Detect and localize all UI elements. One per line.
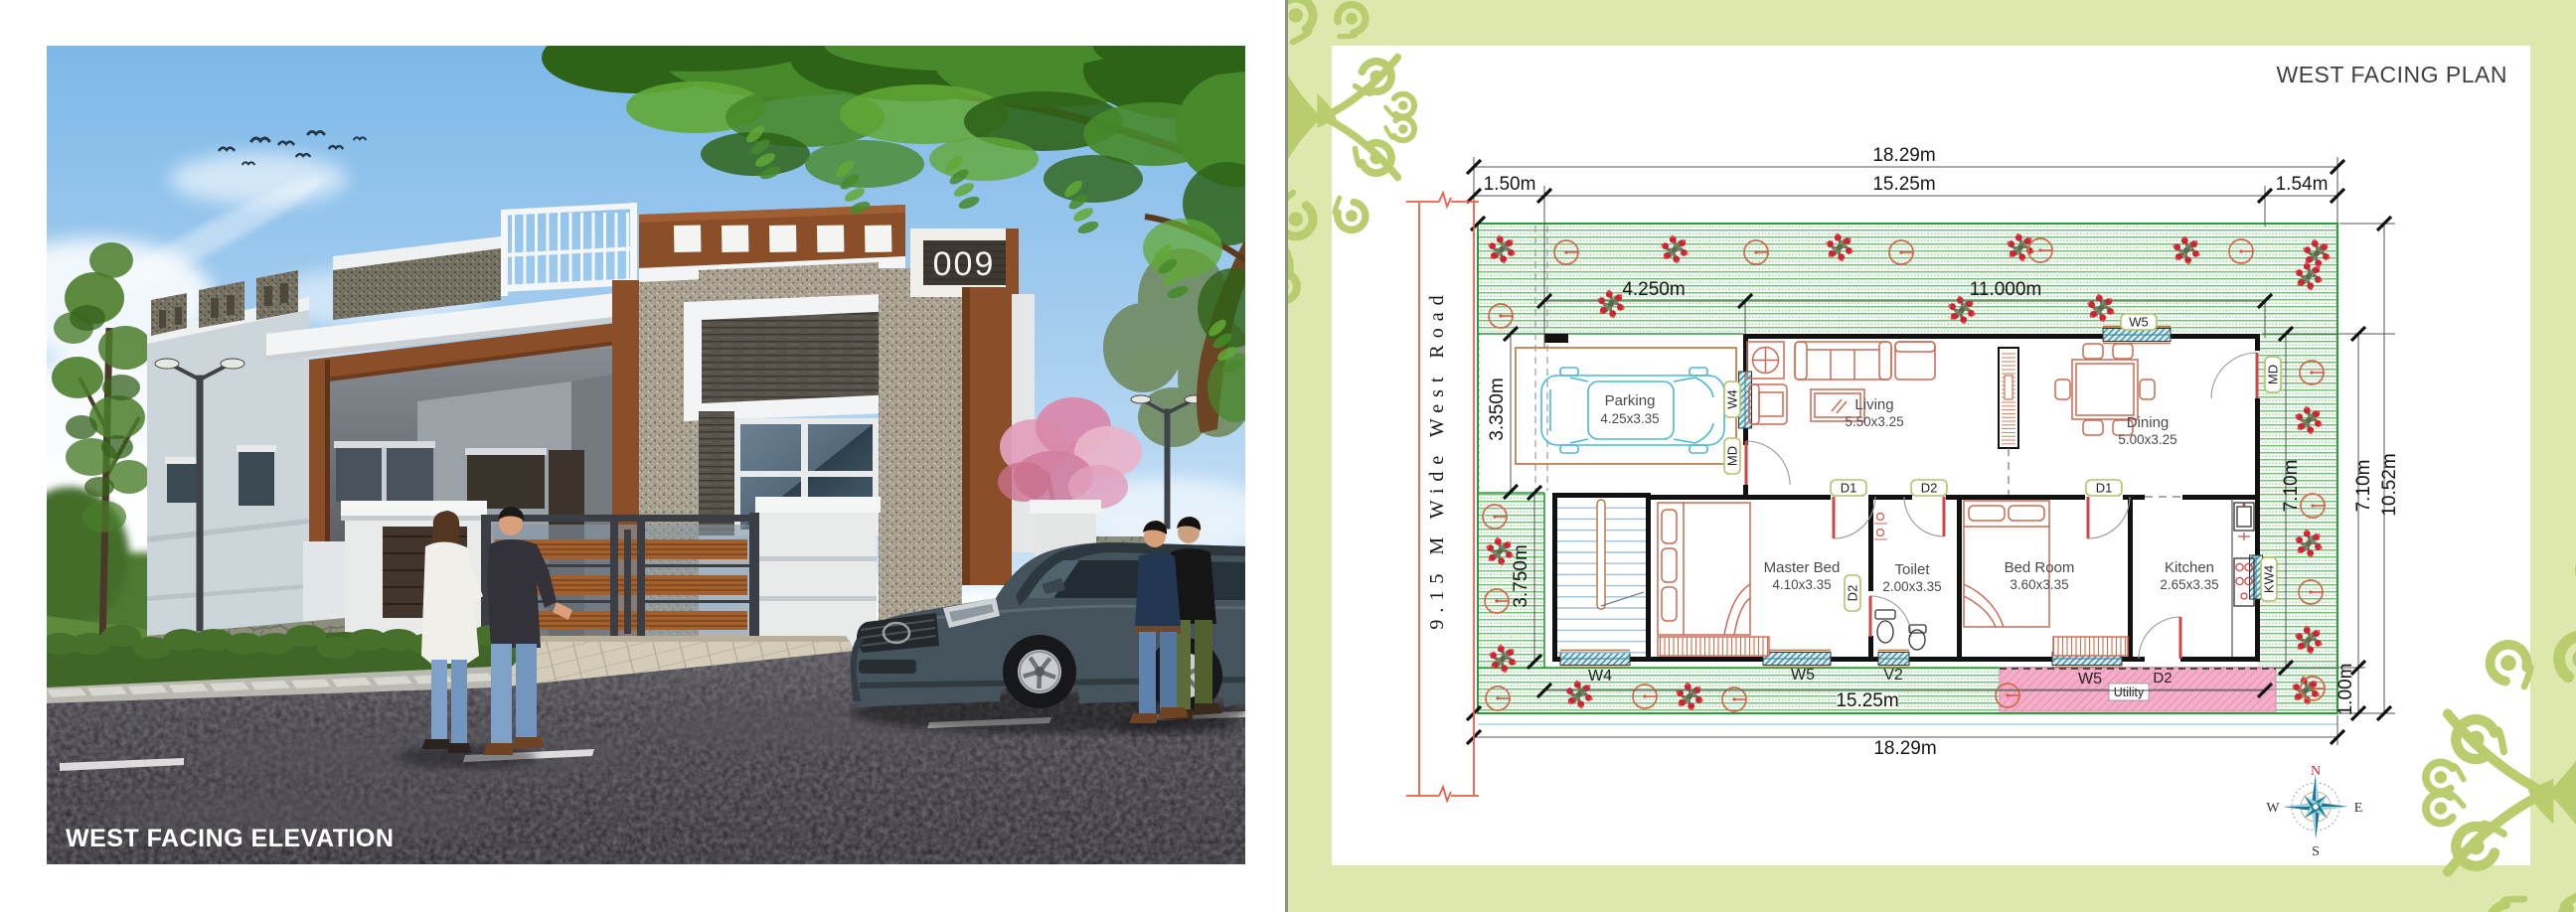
svg-text:4.10x3.35: 4.10x3.35 xyxy=(1772,577,1831,592)
svg-text:Bed Room: Bed Room xyxy=(2005,559,2075,576)
svg-text:Toilet: Toilet xyxy=(1894,561,1930,578)
svg-text:1.50m: 1.50m xyxy=(1484,174,1536,195)
svg-text:Parking: Parking xyxy=(1605,392,1656,409)
svg-text:7.10m: 7.10m xyxy=(2353,460,2374,513)
svg-text:009: 009 xyxy=(933,245,996,283)
svg-text:7.10m: 7.10m xyxy=(2281,460,2302,513)
svg-text:KW4: KW4 xyxy=(2262,565,2277,593)
svg-text:18.29m: 18.29m xyxy=(1872,145,1935,166)
svg-text:10.52m: 10.52m xyxy=(2379,453,2400,516)
svg-text:W5: W5 xyxy=(2078,671,2102,687)
svg-text:Dining: Dining xyxy=(2127,414,2170,431)
svg-text:D2: D2 xyxy=(1921,481,1938,496)
svg-text:4.25x3.35: 4.25x3.35 xyxy=(1600,411,1659,426)
svg-text:S: S xyxy=(2312,844,2320,859)
svg-text:D2: D2 xyxy=(1846,585,1860,602)
svg-text:E: E xyxy=(2354,801,2363,816)
svg-text:Utility: Utility xyxy=(2114,685,2145,699)
svg-text:1.54m: 1.54m xyxy=(2276,174,2329,195)
svg-text:Master Bed: Master Bed xyxy=(1764,559,1841,576)
svg-text:11.000m: 11.000m xyxy=(1970,279,2042,300)
svg-text:D1: D1 xyxy=(1841,481,1857,496)
svg-text:MD: MD xyxy=(1725,446,1740,466)
svg-text:W4: W4 xyxy=(1588,668,1612,684)
svg-text:N: N xyxy=(2311,764,2321,779)
svg-text:Kitchen: Kitchen xyxy=(2165,559,2214,576)
svg-text:4.250m: 4.250m xyxy=(1622,279,1685,300)
svg-text:2.65x3.35: 2.65x3.35 xyxy=(2160,577,2218,592)
svg-text:18.29m: 18.29m xyxy=(1873,738,1936,759)
svg-text:Living: Living xyxy=(1854,396,1893,413)
svg-text:15.25m: 15.25m xyxy=(1836,690,1898,711)
svg-text:1.00m: 1.00m xyxy=(2335,664,2356,716)
svg-text:W4: W4 xyxy=(1725,389,1740,409)
svg-text:5.50x3.25: 5.50x3.25 xyxy=(1845,414,1903,429)
svg-text:WEST FACING ELEVATION: WEST FACING ELEVATION xyxy=(66,825,394,852)
svg-text:2.00x3.35: 2.00x3.35 xyxy=(1882,579,1941,594)
svg-text:W: W xyxy=(2266,801,2280,816)
svg-text:3.750m: 3.750m xyxy=(1511,544,1531,607)
svg-text:5.00x3.25: 5.00x3.25 xyxy=(2118,432,2176,447)
svg-text:W5: W5 xyxy=(1791,667,1815,684)
svg-text:3.60x3.35: 3.60x3.35 xyxy=(2010,577,2068,592)
svg-text:D1: D1 xyxy=(2096,481,2113,496)
svg-text:W5: W5 xyxy=(2129,315,2149,330)
svg-text:3.350m: 3.350m xyxy=(1487,378,1508,440)
svg-text:MD: MD xyxy=(2266,365,2281,384)
svg-text:WEST FACING PLAN: WEST FACING PLAN xyxy=(2276,62,2507,87)
svg-text:V2: V2 xyxy=(1883,667,1903,684)
svg-text:D2: D2 xyxy=(2153,670,2172,686)
svg-text:15.25m: 15.25m xyxy=(1872,174,1935,195)
svg-text:9.15 M Wide West Road: 9.15 M Wide West Road xyxy=(1426,288,1448,629)
